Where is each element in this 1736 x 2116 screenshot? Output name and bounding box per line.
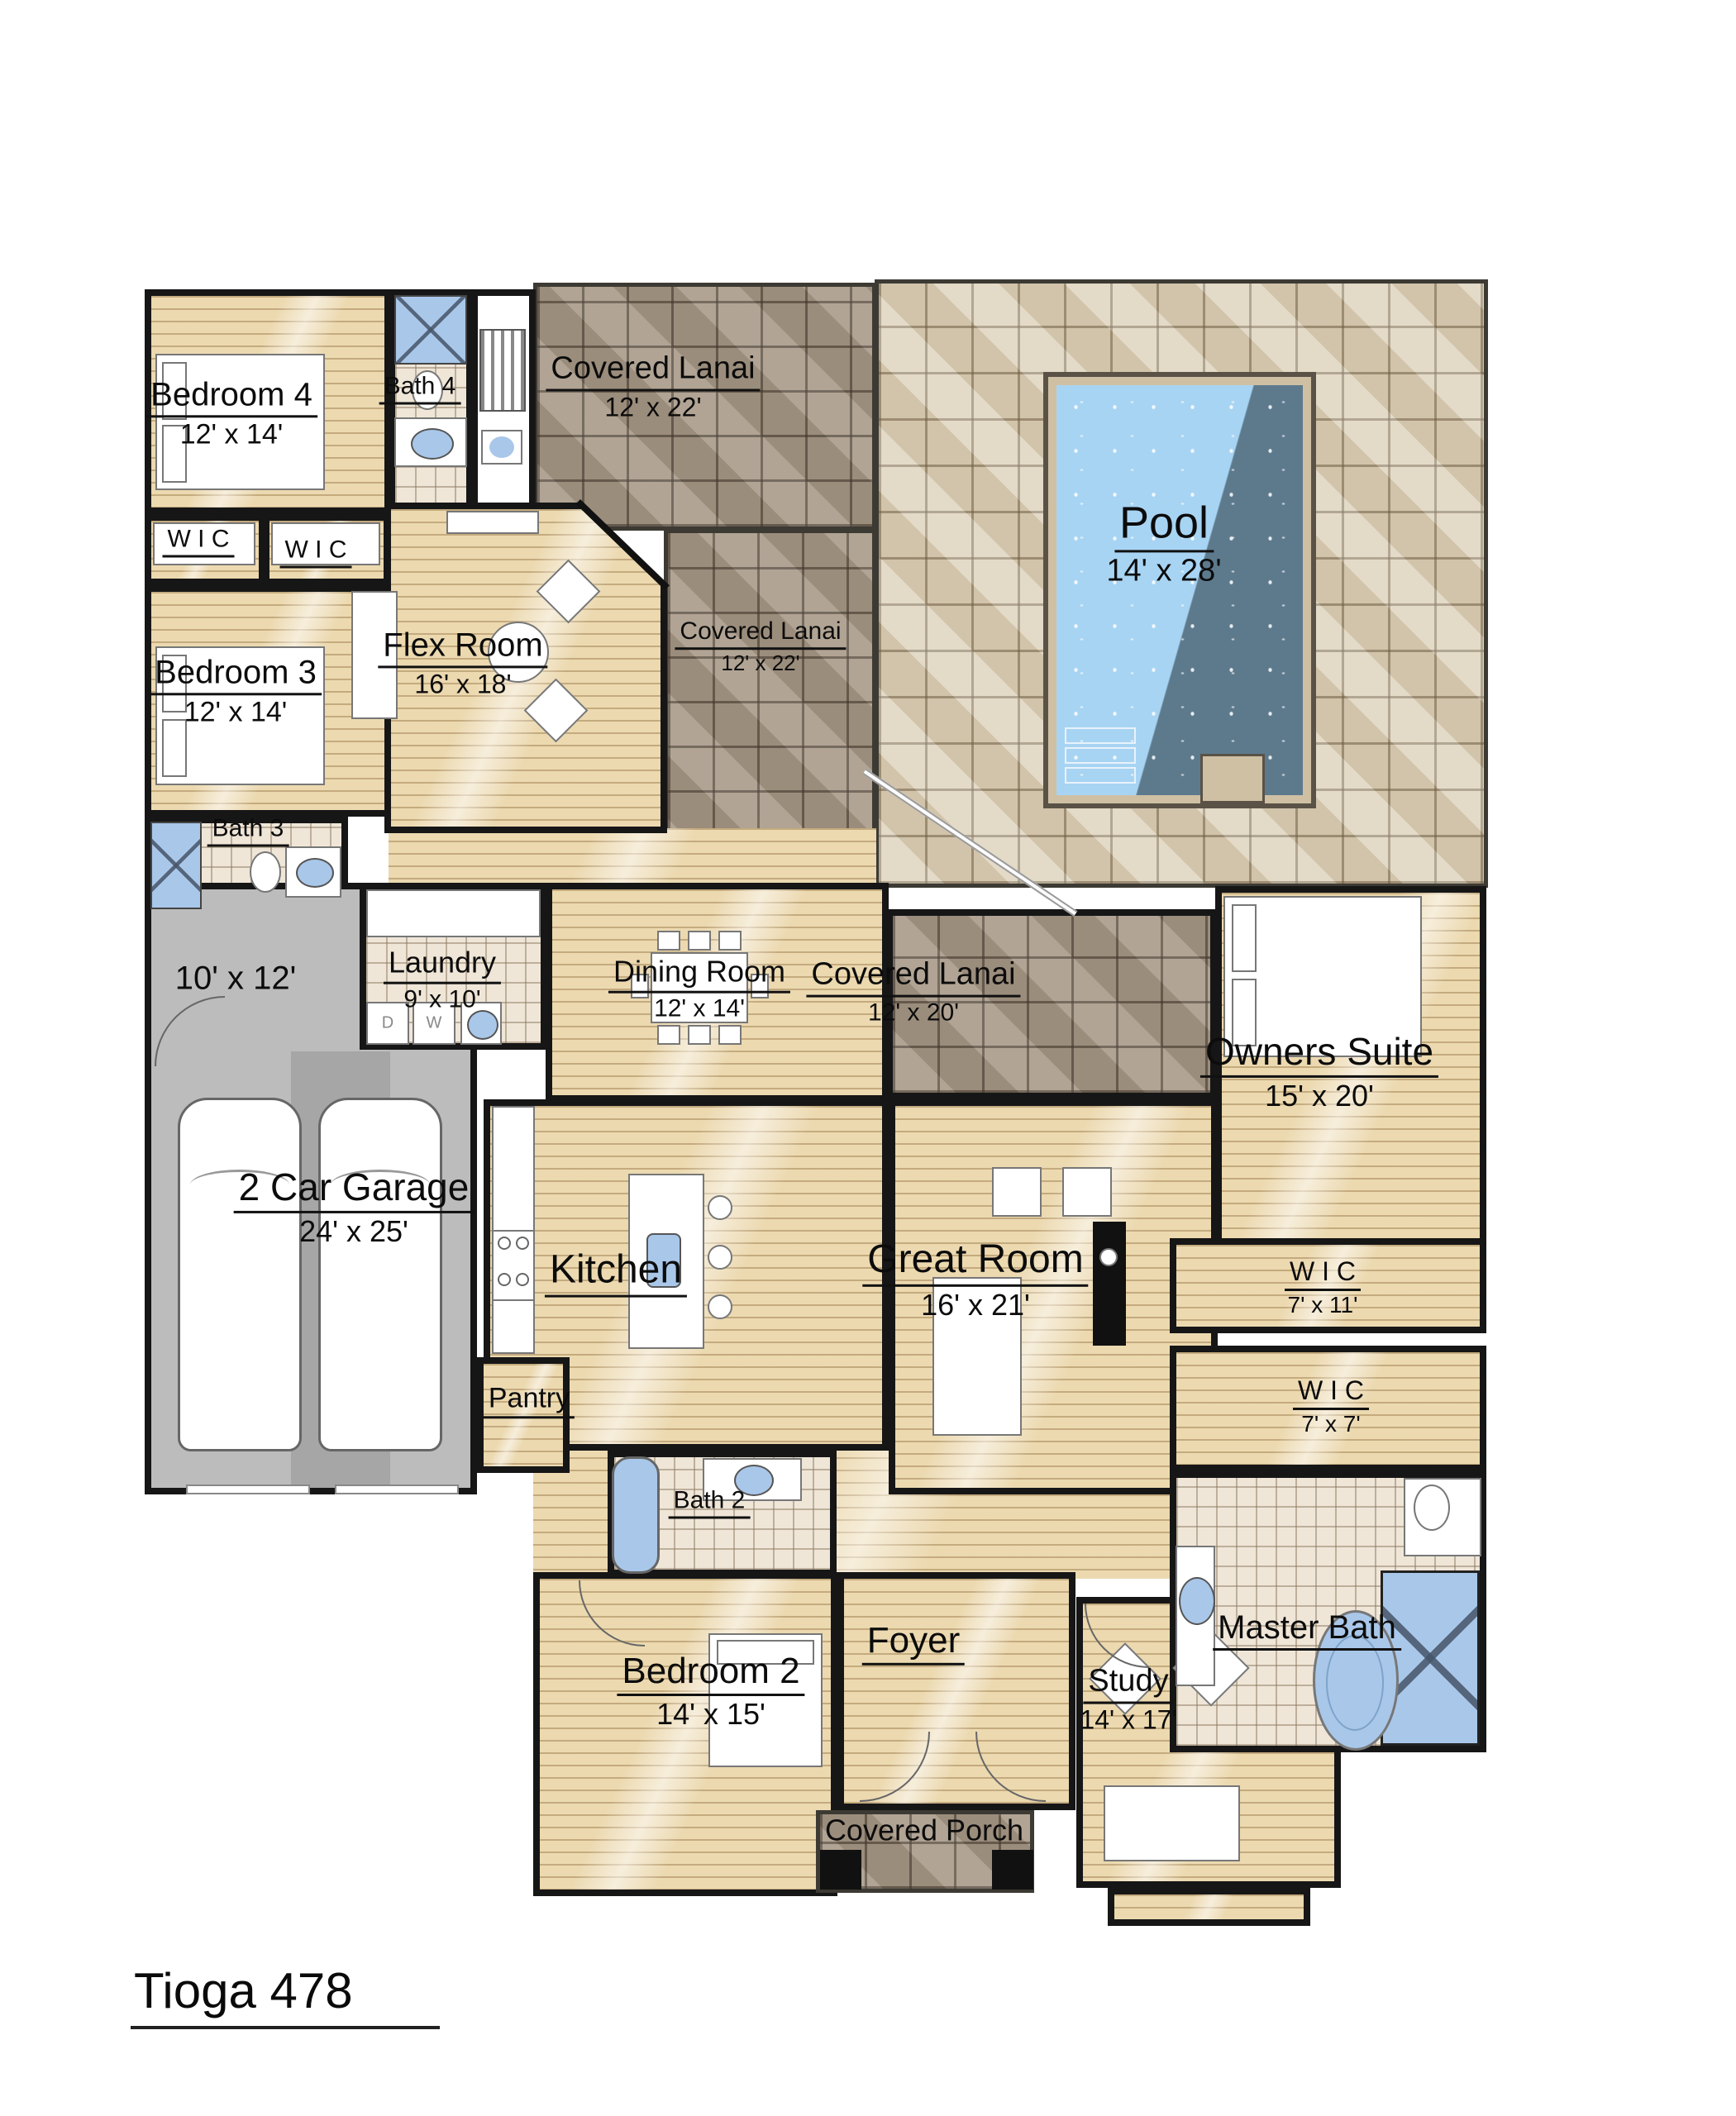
room-name: Study (1083, 1665, 1173, 1704)
room-name: Owners Suite (1200, 1031, 1438, 1078)
stool-icon (708, 1294, 732, 1319)
room-dims: 16' x 18' (378, 670, 547, 698)
room-label-kitchen: Kitchen (545, 1249, 687, 1298)
sink-icon (411, 428, 454, 460)
stool-icon (708, 1245, 732, 1270)
chair-icon (688, 931, 711, 951)
room-name: Bath 3 (207, 815, 289, 847)
room-dims: 12' x 14' (145, 419, 317, 450)
room-dims: 12' x 14' (608, 994, 790, 1022)
room-label-bedroom4: Bedroom 4 12' x 14' (145, 376, 317, 450)
tub-icon (612, 1456, 660, 1574)
room-name: 2 Car Garage (234, 1166, 475, 1213)
room-name: W I C (280, 536, 352, 569)
room-label-lanai-right: Covered Lanai 12' x 20' (806, 958, 1020, 1027)
car-icon (318, 1098, 442, 1451)
room-label-wic-b: W I C (280, 536, 352, 569)
room-name: Covered Porch (820, 1814, 1028, 1850)
room-dims: 24' x 25' (234, 1215, 475, 1248)
sink-icon (296, 858, 334, 888)
room-label-wic-d: W I C 7' x 7' (1293, 1376, 1369, 1437)
porch-post (820, 1850, 861, 1890)
room-label-garage: 2 Car Garage 24' x 25' (234, 1166, 475, 1247)
room-label-bath2: Bath 2 (669, 1487, 751, 1519)
room-name: Great Room (862, 1238, 1088, 1287)
pillow-icon (1232, 904, 1257, 972)
chair-icon (657, 931, 680, 951)
room-name: W I C (1285, 1257, 1361, 1291)
plan-title: Tioga 478 (131, 1962, 440, 2029)
room-label-garage-bay: 10' x 12' (170, 960, 301, 999)
room-label-great: Great Room 16' x 21' (862, 1238, 1088, 1321)
room-dims: 12' x 22' (546, 393, 760, 422)
pool-steps (1065, 767, 1136, 784)
room-name: Foyer (862, 1621, 965, 1666)
room-dims: 16' x 21' (862, 1289, 1088, 1322)
room-name: Bedroom 4 (145, 376, 317, 417)
media-wall (1093, 1222, 1126, 1346)
room-label-bath4: Bath 4 (379, 373, 461, 405)
sink-icon (467, 1010, 498, 1040)
room-name: Laundry (384, 946, 501, 984)
room-name: Covered Lanai (675, 617, 846, 650)
chair-icon (718, 1025, 742, 1045)
room-label-laundry: Laundry 9' x 10' (384, 946, 501, 1013)
speaker-icon (1099, 1248, 1118, 1266)
room-name: Bath 4 (379, 373, 461, 405)
room-name: Flex Room (378, 627, 547, 668)
burner-icon (516, 1237, 529, 1250)
room-name: Bedroom 2 (617, 1651, 804, 1696)
room-dims: 14' x 28' (1106, 555, 1221, 589)
laundry-counter (366, 889, 541, 937)
room-dims: 12' x 22' (675, 651, 846, 675)
stool-icon (708, 1195, 732, 1220)
dryer-label: D (382, 1014, 393, 1033)
sideboard-icon (446, 511, 539, 534)
pool-ledge (1200, 754, 1265, 803)
room-dims: 7' x 11' (1285, 1293, 1361, 1318)
toilet-icon (250, 851, 281, 893)
room-dims: 12' x 20' (806, 998, 1020, 1026)
grill-icon (479, 329, 526, 412)
burner-icon (498, 1273, 511, 1286)
hallway (389, 828, 876, 886)
room-label-pantry: Pantry (484, 1383, 575, 1418)
room-label-bedroom2: Bedroom 2 14' x 15' (617, 1651, 804, 1731)
room-name: Pool (1114, 498, 1214, 552)
room-label-owners: Owners Suite 15' x 20' (1200, 1031, 1438, 1112)
garage-door (186, 1485, 310, 1494)
room-dims: 12' x 14' (150, 697, 322, 727)
garage-door (335, 1485, 459, 1494)
car-icon (178, 1098, 302, 1451)
room-label-study: Study 14' x 17' (1080, 1665, 1176, 1735)
room-label-foyer: Foyer (862, 1621, 965, 1666)
room-label-bedroom3: Bedroom 3 12' x 14' (150, 654, 322, 727)
room-name: Covered Lanai (806, 958, 1020, 998)
room-label-wic-a: W I C (163, 526, 235, 558)
washer-label: W (427, 1014, 442, 1033)
room-name: Covered Lanai (546, 352, 760, 392)
room-dims: 10' x 12' (170, 960, 301, 999)
shower-icon (394, 295, 467, 365)
sink-icon (489, 436, 514, 458)
room-name: Dining Room (608, 956, 790, 994)
study-bay (1108, 1888, 1310, 1926)
room-name: Bedroom 3 (150, 654, 322, 695)
room-label-pool: Pool 14' x 28' (1106, 498, 1221, 589)
pool-steps (1065, 747, 1136, 764)
room-name: Bath 2 (669, 1487, 751, 1519)
room-name: W I C (163, 526, 235, 558)
chair-icon (657, 1025, 680, 1045)
room-dims: 7' x 7' (1293, 1412, 1369, 1437)
floor-plan: D W (0, 0, 1736, 2116)
burner-icon (498, 1237, 511, 1250)
armchair-icon (992, 1167, 1042, 1217)
room-name: Kitchen (545, 1249, 687, 1298)
room-dims: 9' x 10' (384, 985, 501, 1013)
room-dims: 14' x 17' (1080, 1705, 1176, 1734)
room-name: Pantry (484, 1383, 575, 1418)
shower-icon (150, 822, 202, 909)
toilet-icon (1414, 1485, 1450, 1531)
room-name: W I C (1293, 1376, 1369, 1410)
room-label-bath3: Bath 3 (207, 815, 289, 847)
chair-icon (688, 1025, 711, 1045)
room-label-lanai-mid: Covered Lanai 12' x 22' (675, 617, 846, 675)
porch-post (992, 1850, 1033, 1890)
chair-icon (718, 931, 742, 951)
room-label-flex: Flex Room 16' x 18' (378, 627, 547, 698)
room-name: Master Bath (1213, 1609, 1401, 1651)
room-label-lanai-top: Covered Lanai 12' x 22' (546, 352, 760, 422)
room-label-masterbath: Master Bath (1213, 1609, 1401, 1651)
pool-steps (1065, 727, 1136, 744)
desk-icon (1104, 1785, 1240, 1861)
room-dims: 14' x 15' (617, 1698, 804, 1731)
room-dims: 15' x 20' (1200, 1079, 1438, 1113)
sink-icon (1179, 1577, 1215, 1625)
burner-icon (516, 1273, 529, 1286)
room-label-wic-c: W I C 7' x 11' (1285, 1257, 1361, 1318)
room-label-dining: Dining Room 12' x 14' (608, 956, 790, 1022)
room-label-porch: Covered Porch (820, 1814, 1028, 1850)
armchair-icon (1062, 1167, 1112, 1217)
